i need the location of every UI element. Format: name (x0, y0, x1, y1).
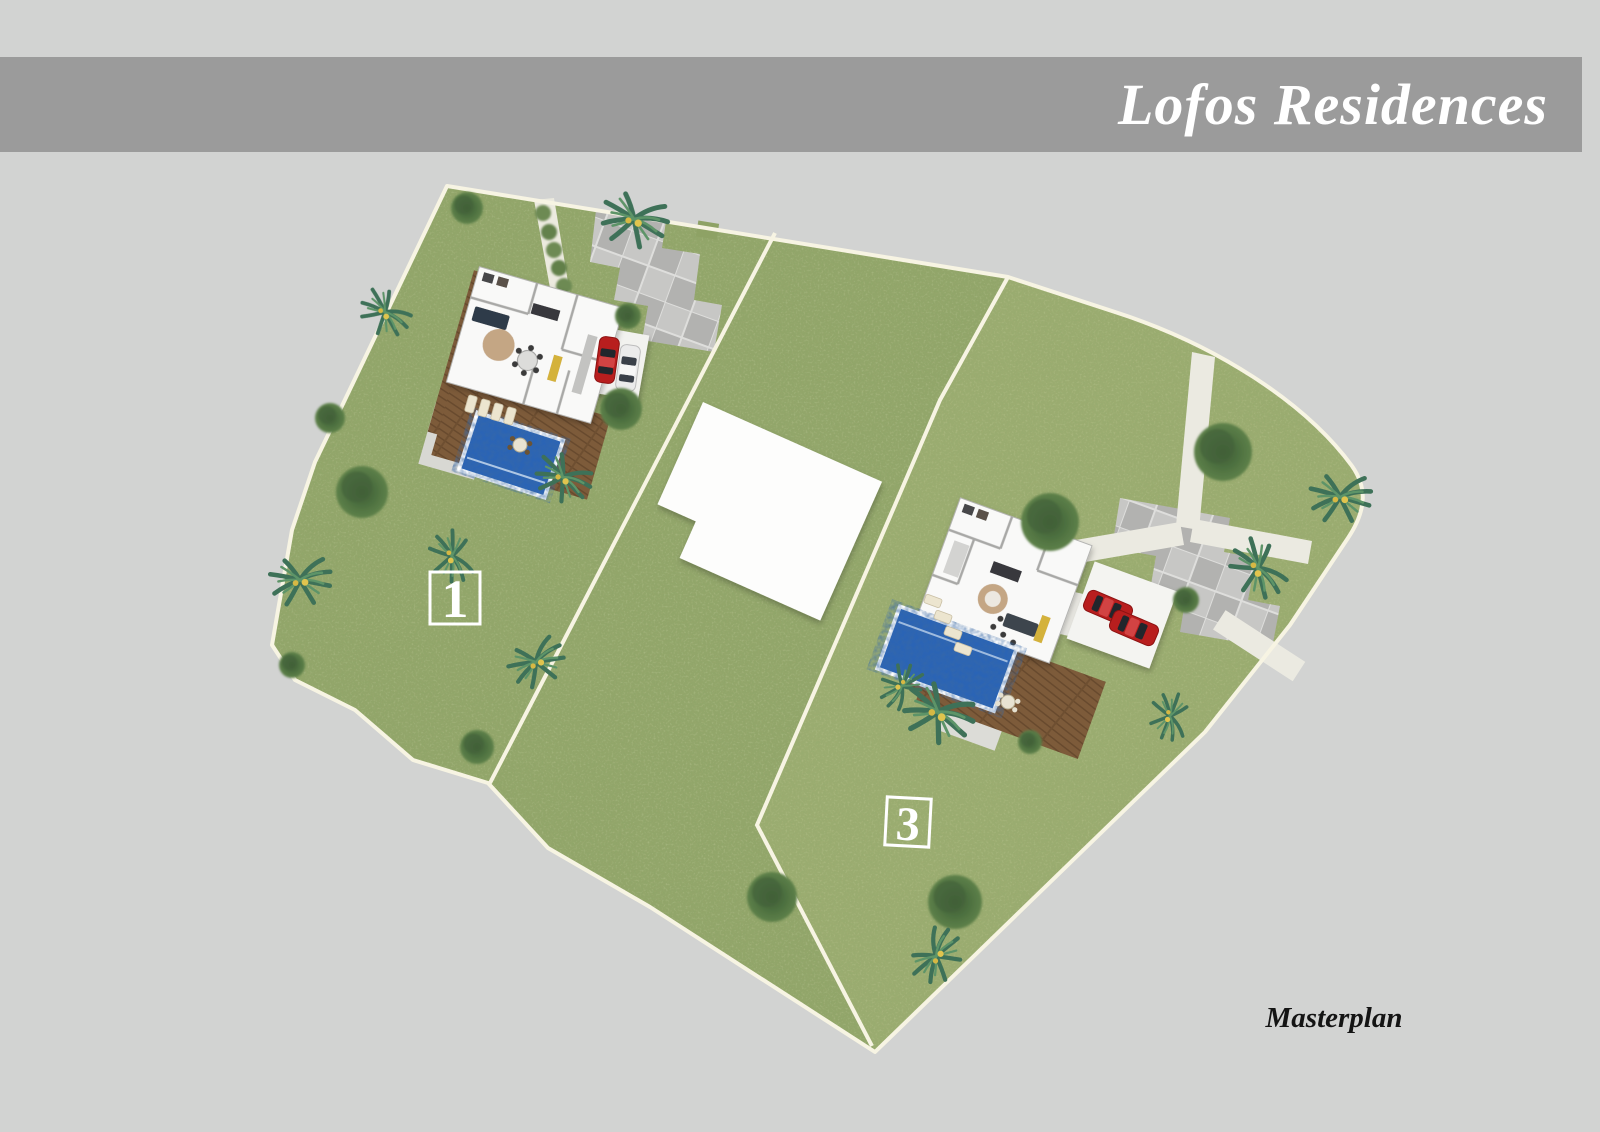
tree-icon (747, 872, 797, 922)
tree-icon (279, 652, 305, 678)
caption-masterplan: Masterplan (1239, 1002, 1429, 1035)
masterplan-rendering: 1 3 (0, 0, 1600, 1132)
page: Lofos Residences (0, 0, 1600, 1132)
tree-icon (1018, 730, 1042, 754)
plot-3-label: 3 (894, 797, 921, 851)
tree-icon (615, 303, 641, 329)
tree-icon (1021, 493, 1079, 551)
tree-icon (1173, 587, 1199, 613)
tree-icon (600, 388, 642, 430)
tree-icon (1194, 423, 1252, 481)
tree-icon (928, 875, 982, 929)
tree-icon (451, 192, 483, 224)
tree-icon (315, 403, 345, 433)
plot-1-label: 1 (442, 569, 469, 629)
tree-icon (460, 730, 494, 764)
tree-icon (336, 466, 388, 518)
